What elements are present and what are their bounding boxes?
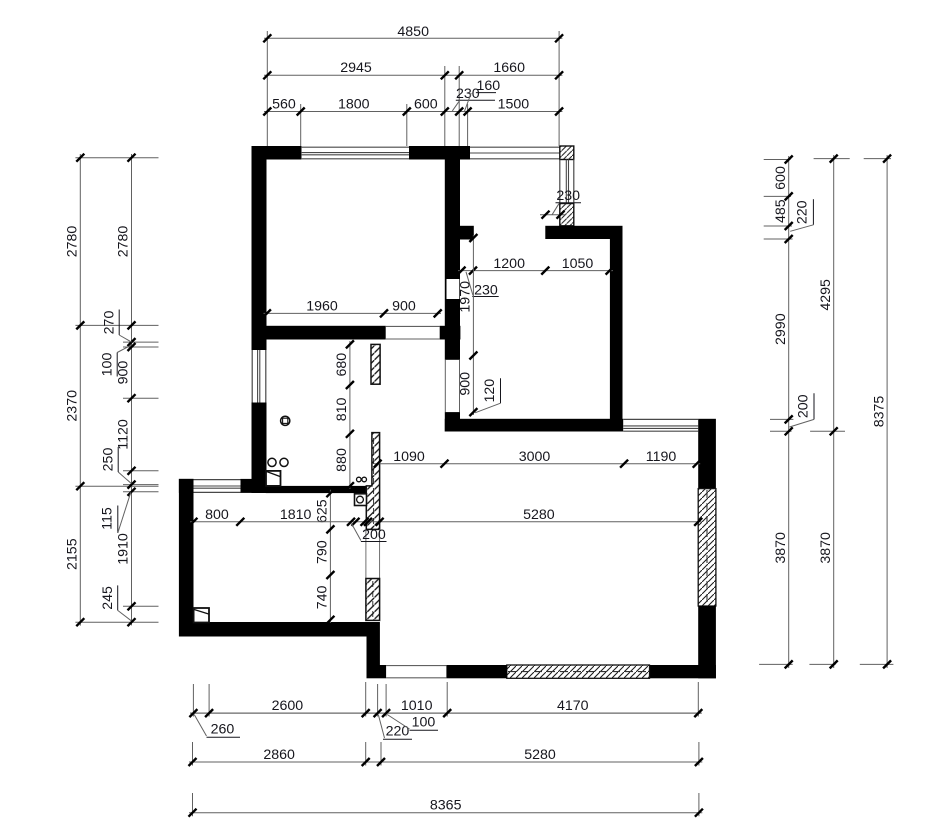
svg-text:270: 270 xyxy=(102,311,118,335)
svg-text:4295: 4295 xyxy=(818,279,834,311)
svg-text:5280: 5280 xyxy=(524,747,556,763)
svg-text:1010: 1010 xyxy=(401,698,433,714)
svg-text:250: 250 xyxy=(101,448,117,472)
svg-text:2600: 2600 xyxy=(272,698,304,714)
svg-text:3870: 3870 xyxy=(773,532,789,564)
svg-text:900: 900 xyxy=(457,372,473,396)
svg-text:8375: 8375 xyxy=(871,396,887,428)
svg-text:900: 900 xyxy=(392,299,416,315)
svg-text:245: 245 xyxy=(100,586,116,610)
svg-text:230: 230 xyxy=(556,188,580,204)
svg-text:560: 560 xyxy=(272,97,296,113)
svg-text:120: 120 xyxy=(482,379,498,403)
svg-text:5280: 5280 xyxy=(523,507,555,523)
svg-text:2155: 2155 xyxy=(65,538,81,570)
svg-text:100: 100 xyxy=(100,353,116,377)
svg-text:2860: 2860 xyxy=(263,747,295,763)
svg-text:3000: 3000 xyxy=(519,449,551,465)
svg-text:1810: 1810 xyxy=(280,507,312,523)
svg-text:2780: 2780 xyxy=(116,226,132,258)
svg-text:160: 160 xyxy=(476,78,500,94)
svg-text:800: 800 xyxy=(205,507,229,523)
svg-text:740: 740 xyxy=(314,585,330,609)
svg-text:900: 900 xyxy=(116,361,132,385)
svg-text:1190: 1190 xyxy=(646,449,677,465)
svg-text:220: 220 xyxy=(386,724,410,740)
svg-text:200: 200 xyxy=(796,394,812,418)
svg-text:1660: 1660 xyxy=(493,60,525,76)
svg-text:1960: 1960 xyxy=(306,299,338,315)
svg-text:1500: 1500 xyxy=(498,97,530,113)
svg-text:625: 625 xyxy=(314,499,330,523)
svg-text:115: 115 xyxy=(100,507,116,530)
svg-text:2780: 2780 xyxy=(65,226,81,258)
svg-text:100: 100 xyxy=(412,715,436,731)
svg-text:220: 220 xyxy=(795,200,811,224)
svg-text:1120: 1120 xyxy=(116,419,132,450)
svg-text:2990: 2990 xyxy=(773,313,789,345)
svg-text:1910: 1910 xyxy=(116,533,132,565)
svg-text:680: 680 xyxy=(334,353,350,377)
svg-text:3870: 3870 xyxy=(818,532,834,564)
svg-text:1050: 1050 xyxy=(562,256,594,272)
svg-text:4170: 4170 xyxy=(557,698,589,714)
svg-text:8365: 8365 xyxy=(430,798,462,814)
svg-text:1090: 1090 xyxy=(393,449,425,465)
svg-text:4850: 4850 xyxy=(397,24,429,40)
svg-text:1200: 1200 xyxy=(493,256,525,272)
svg-text:2370: 2370 xyxy=(65,390,81,422)
svg-text:200: 200 xyxy=(362,527,386,543)
svg-text:600: 600 xyxy=(773,166,789,190)
svg-text:1970: 1970 xyxy=(457,281,473,313)
svg-text:790: 790 xyxy=(314,540,330,564)
svg-text:1800: 1800 xyxy=(338,97,370,113)
svg-text:260: 260 xyxy=(211,722,235,738)
svg-text:880: 880 xyxy=(334,448,350,472)
svg-text:810: 810 xyxy=(334,397,350,421)
svg-text:2945: 2945 xyxy=(340,60,372,76)
svg-text:485: 485 xyxy=(773,199,789,223)
svg-text:600: 600 xyxy=(414,97,438,113)
